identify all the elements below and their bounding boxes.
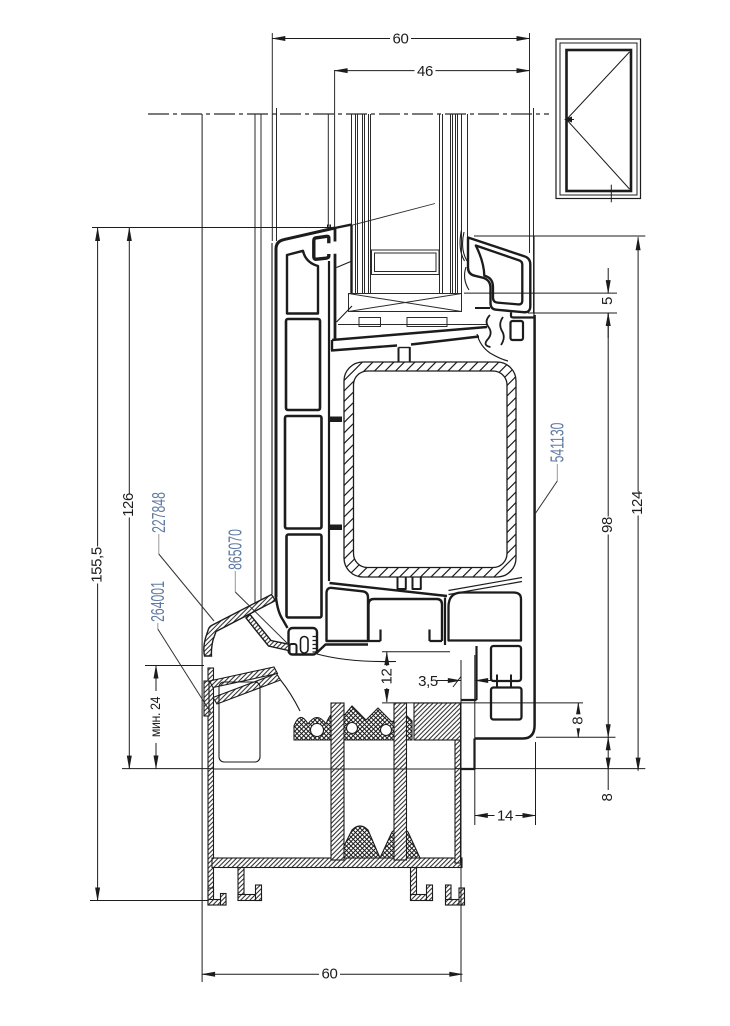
svg-text:124: 124: [629, 491, 646, 515]
svg-text:98: 98: [599, 517, 616, 533]
svg-text:60: 60: [322, 966, 338, 983]
svg-text:мин. 24: мин. 24: [147, 697, 163, 737]
svg-text:46: 46: [417, 63, 433, 80]
svg-text:227848: 227848: [150, 492, 170, 533]
svg-text:5: 5: [599, 297, 616, 305]
svg-text:126: 126: [120, 493, 137, 517]
svg-text:12: 12: [378, 669, 395, 685]
svg-text:3,5: 3,5: [418, 673, 438, 690]
svg-text:8: 8: [599, 793, 616, 801]
svg-text:8: 8: [569, 717, 586, 725]
svg-text:60: 60: [393, 31, 409, 48]
svg-text:155,5: 155,5: [89, 547, 106, 583]
svg-text:14: 14: [497, 808, 513, 825]
svg-text:865070: 865070: [226, 529, 246, 570]
svg-text:264001: 264001: [149, 581, 169, 622]
svg-text:541130: 541130: [548, 422, 568, 462]
